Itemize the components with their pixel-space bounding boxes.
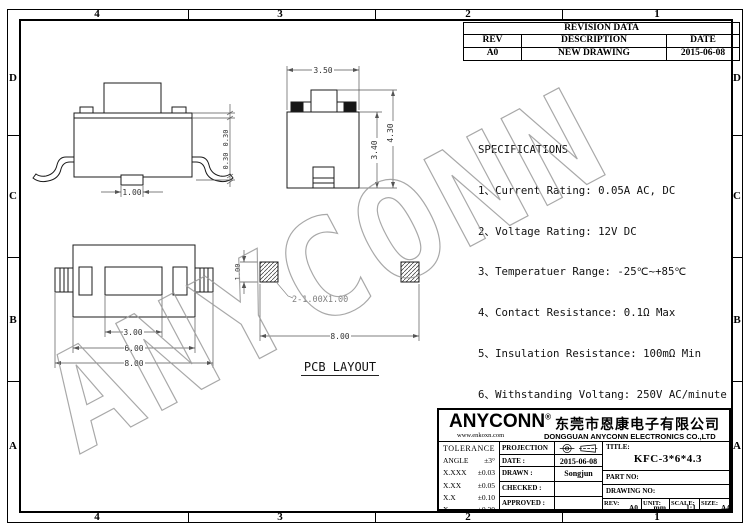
title-block-bottom-row: REV: A0 UNIT: mm SCALE: 1:1 SIZE: A4	[603, 499, 733, 513]
pcb-layout-caption: PCB LAYOUT	[301, 360, 379, 376]
tolerance-row: X.XXX ±0.03	[439, 468, 499, 477]
dim-label-pcb-pad-height: 1.00	[234, 264, 242, 281]
title-label: TITLE:	[606, 443, 630, 451]
zone-label-top: 4	[94, 8, 100, 20]
top-view-drawing	[55, 245, 213, 317]
title-block-company-header: ANYCONN® 东莞市恩康电子有限公司 www.enkoxn.com DONG…	[439, 410, 729, 442]
zone-label-top: 1	[654, 8, 660, 20]
checked-value	[555, 482, 602, 497]
zone-divider	[562, 9, 563, 19]
zone-divider	[375, 513, 376, 523]
pcb-layout-drawing	[260, 262, 419, 282]
spec-line: 2、Voltage Rating: 12V DC	[478, 225, 727, 240]
zone-label-left: B	[9, 314, 16, 326]
approved-label: APPROVED :	[500, 497, 554, 513]
tolerance-title: TOLERANCE	[439, 444, 499, 453]
rev-cell: REV: A0	[603, 499, 642, 513]
front-view-dimensions	[287, 66, 397, 188]
zone-label-right: A	[733, 440, 741, 452]
unit-cell: UNIT: mm	[642, 499, 670, 513]
tolerance-label: X.	[443, 505, 450, 514]
tolerance-table: TOLERANCE ANGLE ±3° X.XXX ±0.03 X.XX ±0.…	[439, 442, 500, 513]
side-view-drawing	[33, 83, 233, 185]
spec-line: 1、Current Rating: 0.05A AC, DC	[478, 184, 727, 199]
title-block-label-column: PROJECTION DATE : DRAWN : CHECKED : APPR…	[500, 442, 555, 513]
projection-label: PROJECTION	[500, 442, 554, 455]
revision-table-header-row: REV DESCRIPTION DATE	[464, 35, 739, 48]
tolerance-value: ±3°	[484, 456, 495, 465]
revision-date-value: 2015-06-08	[667, 48, 739, 60]
dim-label-side-top: 0.30	[222, 130, 230, 147]
tolerance-value: ±0.03	[478, 468, 495, 477]
dim-label-pcb-pad-note: 2-1.00X1.00	[292, 295, 348, 305]
date-label: DATE :	[500, 455, 554, 467]
zone-label-right: B	[733, 314, 740, 326]
company-name-en: DONGGUAN ANYCONN ELECTRONICS CO.,LTD	[544, 432, 716, 441]
part-title: KFC-3*6*4.3	[603, 453, 733, 465]
company-website: www.enkoxn.com	[457, 432, 504, 439]
dim-label-side-lead-pitch: 1.00	[122, 188, 141, 197]
revision-header-date: DATE	[667, 35, 739, 47]
tolerance-value: ±0.10	[478, 493, 495, 502]
zone-divider	[375, 9, 376, 19]
tolerance-label: X.X	[443, 493, 456, 502]
zone-label-left: A	[9, 440, 17, 452]
zone-divider	[731, 257, 743, 258]
approved-value	[555, 497, 602, 513]
drawn-label: DRAWN :	[500, 467, 554, 482]
specifications-block: SPECIFICATIONS 1、Current Rating: 0.05A A…	[478, 117, 727, 429]
unit-value: mm	[654, 503, 667, 512]
revision-table-title: REVISION DATA	[464, 23, 739, 35]
revision-rev-value: A0	[464, 48, 522, 60]
projection-symbol-cell	[555, 442, 602, 455]
rev-value: A0	[629, 503, 638, 512]
drawn-value: Songjun	[555, 467, 602, 482]
scale-cell: SCALE: 1:1	[670, 499, 700, 513]
drawing-no-cell: DRAWING NO:	[603, 485, 733, 499]
registered-mark: ®	[545, 413, 551, 422]
size-cell: SIZE: A4	[700, 499, 733, 513]
rev-label: REV:	[604, 500, 619, 507]
tolerance-value: ±0.20	[478, 505, 495, 514]
drawing-title-cell: TITLE: KFC-3*6*4.3	[603, 442, 733, 471]
revision-table-data-row: A0 NEW DRAWING 2015-06-08	[464, 48, 739, 60]
spec-line: 4、Contact Resistance: 0.1Ω Max	[478, 306, 727, 321]
zone-label-bottom: 4	[94, 511, 100, 523]
dim-label-top-body-width: 6.00	[124, 344, 143, 353]
dim-label-front-body-height: 3.40	[370, 140, 379, 159]
title-block-value-column: 2015-06-08 Songjun	[555, 442, 603, 513]
revision-header-desc: DESCRIPTION	[522, 35, 667, 47]
zone-label-left: D	[9, 72, 17, 84]
date-value: 2015-06-08	[555, 455, 602, 467]
zone-divider	[188, 513, 189, 523]
tolerance-row: ANGLE ±3°	[439, 456, 499, 465]
zone-label-bottom: 3	[277, 511, 283, 523]
spec-line: 6、Withstanding Voltang: 250V AC/minute	[478, 388, 727, 403]
zone-divider	[188, 9, 189, 19]
zone-divider	[731, 135, 743, 136]
dim-label-front-total-height: 4.30	[386, 123, 395, 142]
zone-label-top: 2	[465, 8, 471, 20]
first-angle-projection-icon	[557, 443, 601, 454]
dim-label-side-bottom: 0.30	[222, 153, 230, 170]
dim-label-top-button-width: 3.00	[123, 328, 142, 337]
zone-divider	[7, 381, 19, 382]
dim-label-front-top-width: 3.50	[313, 66, 332, 75]
zone-label-right: C	[733, 190, 741, 202]
technical-views-canvas: 1.00 0.30 0.30	[30, 55, 440, 385]
scale-value: 1:1	[686, 503, 696, 512]
zone-divider	[7, 135, 19, 136]
zone-label-right: D	[733, 72, 741, 84]
part-no-cell: PART NO:	[603, 471, 733, 485]
zone-divider	[731, 381, 743, 382]
tolerance-label: ANGLE	[443, 456, 468, 465]
brand-name: ANYCONN	[449, 411, 545, 432]
spec-line: 5、Insulation Resistance: 100mΩ Min	[478, 347, 727, 362]
spec-line: 3、Temperatuer Range: -25℃~+85℃	[478, 265, 727, 280]
zone-label-left: C	[9, 190, 17, 202]
front-view-drawing	[287, 90, 359, 188]
tolerance-row: X.XX ±0.05	[439, 481, 499, 490]
dim-label-top-overall-width: 8.00	[124, 359, 143, 368]
specifications-title: SPECIFICATIONS	[478, 143, 727, 158]
revision-table: REVISION DATA REV DESCRIPTION DATE A0 NE…	[463, 22, 740, 61]
tolerance-label: X.XXX	[443, 468, 467, 477]
brand-logo: ANYCONN®	[449, 411, 551, 433]
tolerance-label: X.XX	[443, 481, 461, 490]
tolerance-row: X. ±0.20	[439, 505, 499, 514]
title-block-right-section: TITLE: KFC-3*6*4.3 PART NO: DRAWING NO: …	[603, 442, 733, 513]
zone-label-top: 3	[277, 8, 283, 20]
zone-divider	[562, 513, 563, 523]
engineering-drawing-sheet: 4 3 2 1 4 3 2 1 D C B A D C B A REVISION…	[0, 0, 750, 530]
size-value: A4	[721, 503, 730, 512]
revision-header-rev: REV	[464, 35, 522, 47]
company-name-cn: 东莞市恩康电子有限公司	[555, 414, 720, 434]
revision-desc-value: NEW DRAWING	[522, 48, 667, 60]
size-label: SIZE:	[701, 500, 718, 507]
dim-label-pcb-pad-span: 8.00	[330, 332, 349, 341]
title-block: ANYCONN® 东莞市恩康电子有限公司 www.enkoxn.com DONG…	[437, 408, 731, 511]
zone-divider	[7, 257, 19, 258]
tolerance-value: ±0.05	[478, 481, 495, 490]
checked-label: CHECKED :	[500, 482, 554, 497]
tolerance-row: X.X ±0.10	[439, 493, 499, 502]
